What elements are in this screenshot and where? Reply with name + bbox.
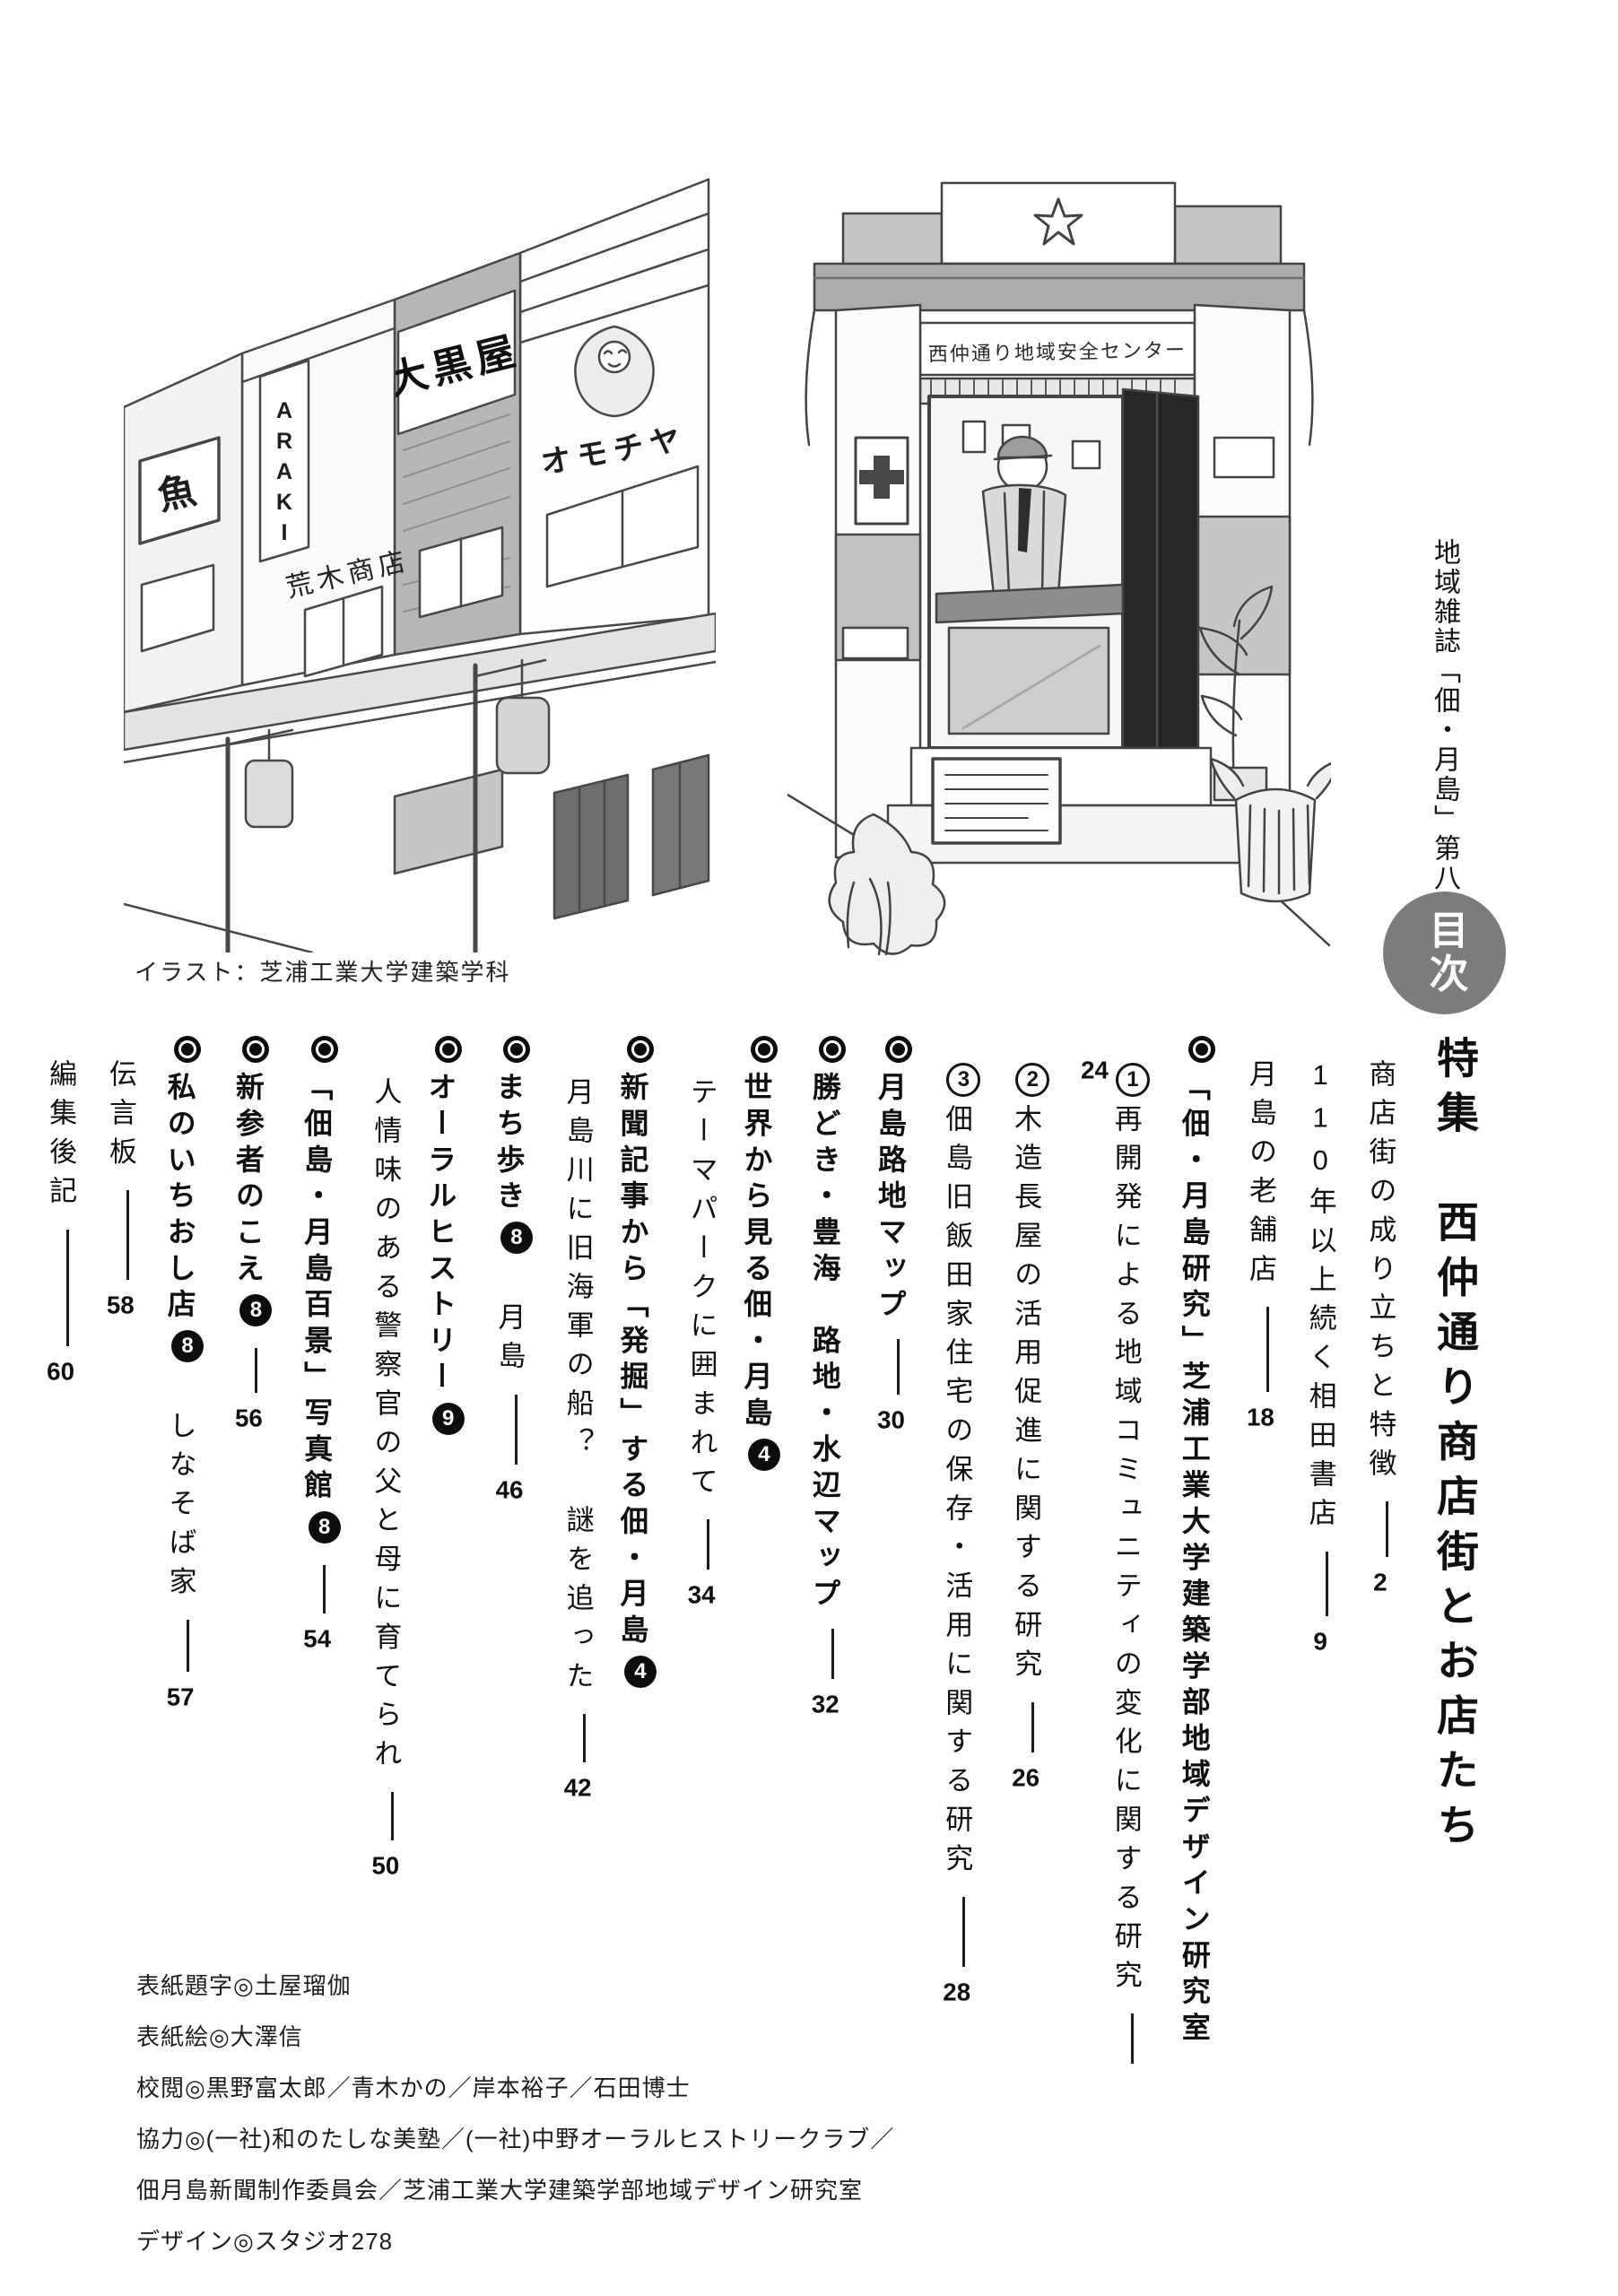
fisheye-bullet-icon [503, 1036, 530, 1063]
toc-entry-label: 月島の老舗店 [1245, 1059, 1276, 1292]
toc-entry: 3佃島旧飯田家住宅の保存・活用に関する研究28 [941, 1036, 981, 2094]
toc-badge-label: 目次 [1416, 909, 1474, 996]
leader-line [1266, 1307, 1269, 1392]
page-number: 58 [107, 1292, 135, 1318]
leader-line [1031, 1702, 1034, 1752]
credit-line: 佃月島新聞制作委員会／芝浦工業大学建築学部地域デザイン研究室 [136, 2165, 894, 2216]
credits-block: 表紙題字◎土屋瑠伽 表紙絵◎大澤信 校閲◎黒野富太郎／青木かの／岸本裕子／石田博… [136, 1961, 894, 2267]
leader-line [897, 1339, 900, 1395]
credit-line: デザイン◎スタジオ278 [136, 2216, 894, 2267]
toc-entry-label: 新聞記事から「発掘」する佃・月島 [616, 1072, 648, 1650]
toc-entry-label: 月島路地マップ [874, 1072, 907, 1325]
credit-line: 表紙題字◎土屋瑠伽 [136, 1961, 894, 2012]
leader-line [391, 1792, 394, 1840]
toc-entry: 編集後記60 [44, 1036, 75, 2094]
page-number: 30 [877, 1407, 905, 1432]
toc-entry: 勝どき・豊海 路地・水辺マップ32 [808, 1036, 846, 2094]
toc-entry-label: 私のいちおし店 [164, 1072, 196, 1325]
toc-entry: 2木造長屋の活用促進に関する研究26 [1009, 1036, 1049, 2094]
leader-line [583, 1714, 586, 1762]
toc-entry-label: 商店街の成り立ちと特徴 [1364, 1059, 1396, 1487]
circled-number-icon: 2 [1015, 1063, 1049, 1097]
page-number: 24 [1081, 1057, 1109, 1083]
toc-entry-label: 木造長屋の活用促進に関する研究 [1010, 1104, 1041, 1688]
circled-number-icon: 8 [239, 1294, 272, 1326]
toc-entry: 110年以上続く相田書店9 [1304, 1036, 1335, 2094]
leader-line [962, 1897, 965, 1967]
credit-line: 協力◎(一社)和のたしな美塾／(一社)中野オーラルヒストリークラブ／ [136, 2114, 894, 2165]
toc-entry: 私のいちおし店8しなそば家57 [163, 1036, 204, 2094]
leader-line [1131, 2013, 1134, 2064]
fisheye-bullet-icon [885, 1036, 912, 1063]
leader-line [515, 1395, 518, 1465]
credit-line: 表紙絵◎大澤信 [136, 2012, 894, 2063]
page-number: 34 [688, 1582, 716, 1607]
toc-entry-label: オーラルヒストリー [424, 1072, 457, 1397]
toc-entry: 「佃島・月島百景」写真館854 [300, 1036, 340, 2094]
lantern-icon [228, 730, 292, 952]
toc-entry-label: 勝どき・豊海 路地・水辺マップ [809, 1072, 841, 1614]
kiosk-illustration: 西仲通り地域安全センター [787, 172, 1331, 961]
toc-entry: 1再開発による地域コミュニティの変化に関する研究24 [1078, 1036, 1150, 2094]
leader-line [323, 1565, 326, 1613]
toc-entry: テーマパークに囲まれて34 [685, 1036, 717, 2094]
toc-entry: 商店街の成り立ちと特徴2 [1364, 1036, 1396, 2094]
fisheye-bullet-icon [311, 1036, 338, 1063]
leader-line [1326, 1552, 1328, 1616]
toc-entry-label: 月島川に旧海軍の船？ 謎を追った [562, 1077, 594, 1700]
page-number: 32 [812, 1692, 839, 1717]
leader-line [126, 1190, 129, 1280]
leader-line [831, 1629, 834, 1679]
toc-entry-label: 110年以上続く相田書店 [1305, 1059, 1336, 1537]
leader-line [1386, 1501, 1388, 1557]
fisheye-bullet-icon [819, 1036, 846, 1063]
toc-entry: 世界から見る佃・月島4 [740, 1036, 780, 2094]
circled-number-icon: 8 [171, 1330, 204, 1362]
toc-entry: 月島の老舗店18 [1244, 1036, 1275, 2094]
toc-entry-label: 新参者のこえ [232, 1072, 265, 1289]
first-aid-cross-icon [856, 438, 908, 524]
kiosk-sign: 西仲通り地域安全センター [928, 338, 1187, 365]
toc-feature-title: 特集 西仲通り商店街とお店たち [1429, 1036, 1476, 2094]
toc-entry-label: 「佃島・月島百景」写真館 [300, 1072, 333, 1506]
circled-number-icon: 4 [748, 1439, 780, 1471]
toc-entry: 「佃・月島研究」芝浦工業大学建築学部地域デザイン研究室 [1178, 1036, 1215, 2094]
magazine-toc-page: オモチヤ 大黒屋 ARAKI 荒木商店 魚 [0, 0, 1618, 2296]
leader-line [66, 1230, 69, 1346]
page-number: 2 [1366, 1570, 1394, 1595]
circled-number-icon: 4 [624, 1656, 657, 1688]
credit-line: 校閲◎黒野富太郎／青木かの／岸本裕子／石田博士 [136, 2063, 894, 2114]
toc-entry-label: 編集後記 [45, 1059, 76, 1215]
toc-entry-label: 伝言板 [105, 1059, 136, 1176]
circled-number-icon: 1 [1116, 1063, 1150, 1097]
fisheye-bullet-icon [242, 1036, 269, 1063]
page-number: 9 [1307, 1629, 1335, 1654]
fisheye-bullet-icon [627, 1036, 654, 1063]
toc-entry: 新参者のこえ856 [231, 1036, 272, 2094]
toc-badge: 目次 [1383, 891, 1506, 1014]
page-number: 26 [1012, 1765, 1040, 1790]
leader-line [707, 1519, 709, 1570]
page-number: 28 [943, 1979, 970, 2005]
page-number: 46 [495, 1477, 523, 1502]
toc-entry-label: 佃島旧飯田家住宅の保存・活用に関する研究 [941, 1104, 972, 1883]
toc-entry: 人情味のある警察官の父と母に育てられ50 [370, 1036, 401, 2094]
toc-entry-label: 世界から見る佃・月島 [740, 1072, 772, 1433]
illustration-caption: イラスト：芝浦工業大学建築学科 [135, 954, 510, 987]
street-illustration: オモチヤ 大黒屋 ARAKI 荒木商店 魚 [124, 163, 716, 952]
page-number: 18 [1247, 1405, 1274, 1430]
circled-number-icon: 3 [946, 1063, 980, 1097]
toc-entry: 月島川に旧海軍の船？ 謎を追った42 [561, 1036, 593, 2094]
circled-number-icon: 8 [309, 1511, 341, 1544]
toc-entry-sublabel: 月島 [493, 1302, 525, 1380]
toc-entry-label: 人情味のある警察官の父と母に育てられ [370, 1077, 401, 1778]
noren-curtain [554, 775, 628, 918]
page-number: 56 [235, 1405, 263, 1431]
page-number: 50 [371, 1853, 399, 1878]
page-number: 42 [564, 1775, 592, 1800]
circled-number-icon: 8 [500, 1222, 533, 1254]
araki-sign: ARAKI [272, 398, 297, 551]
circled-number-icon: 9 [432, 1403, 465, 1435]
page-number: 57 [167, 1684, 195, 1709]
fisheye-bullet-icon [174, 1036, 201, 1063]
page-number: 54 [303, 1626, 331, 1651]
toc-entry-label: 「佃・月島研究」芝浦工業大学建築学部地域デザイン研究室 [1179, 1072, 1211, 2048]
toc-entry-label: まち歩き [492, 1072, 525, 1216]
edition-label: 地域雑誌「佃・月島」第八号 [1424, 538, 1464, 933]
toc-entry-sublabel: しなそば家 [165, 1411, 196, 1605]
leader-line [255, 1348, 257, 1393]
leader-line [187, 1620, 189, 1672]
fisheye-bullet-icon [1188, 1036, 1215, 1063]
toc-entry: 伝言板58 [104, 1036, 135, 2094]
toc-entry: 新聞記事から「発掘」する佃・月島4 [616, 1036, 657, 2094]
fisheye-bullet-icon [435, 1036, 462, 1063]
notice-board [933, 759, 1060, 843]
toc-entry: 月島路地マップ30 [874, 1036, 911, 2094]
table-of-contents: 特集 西仲通り商店街とお店たち 商店街の成り立ちと特徴2 110年以上続く相田書… [140, 1036, 1476, 2094]
toc-entry-label: テーマパークに囲まれて [686, 1077, 718, 1505]
toc-entry-label: 再開発による地域コミュニティの変化に関する研究 [1110, 1104, 1142, 1999]
toc-entry: オーラルヒストリー9 [423, 1036, 464, 2094]
fisheye-bullet-icon [751, 1036, 778, 1063]
page-number: 60 [47, 1359, 74, 1384]
toc-entry: まち歩き8月島46 [492, 1036, 533, 2094]
